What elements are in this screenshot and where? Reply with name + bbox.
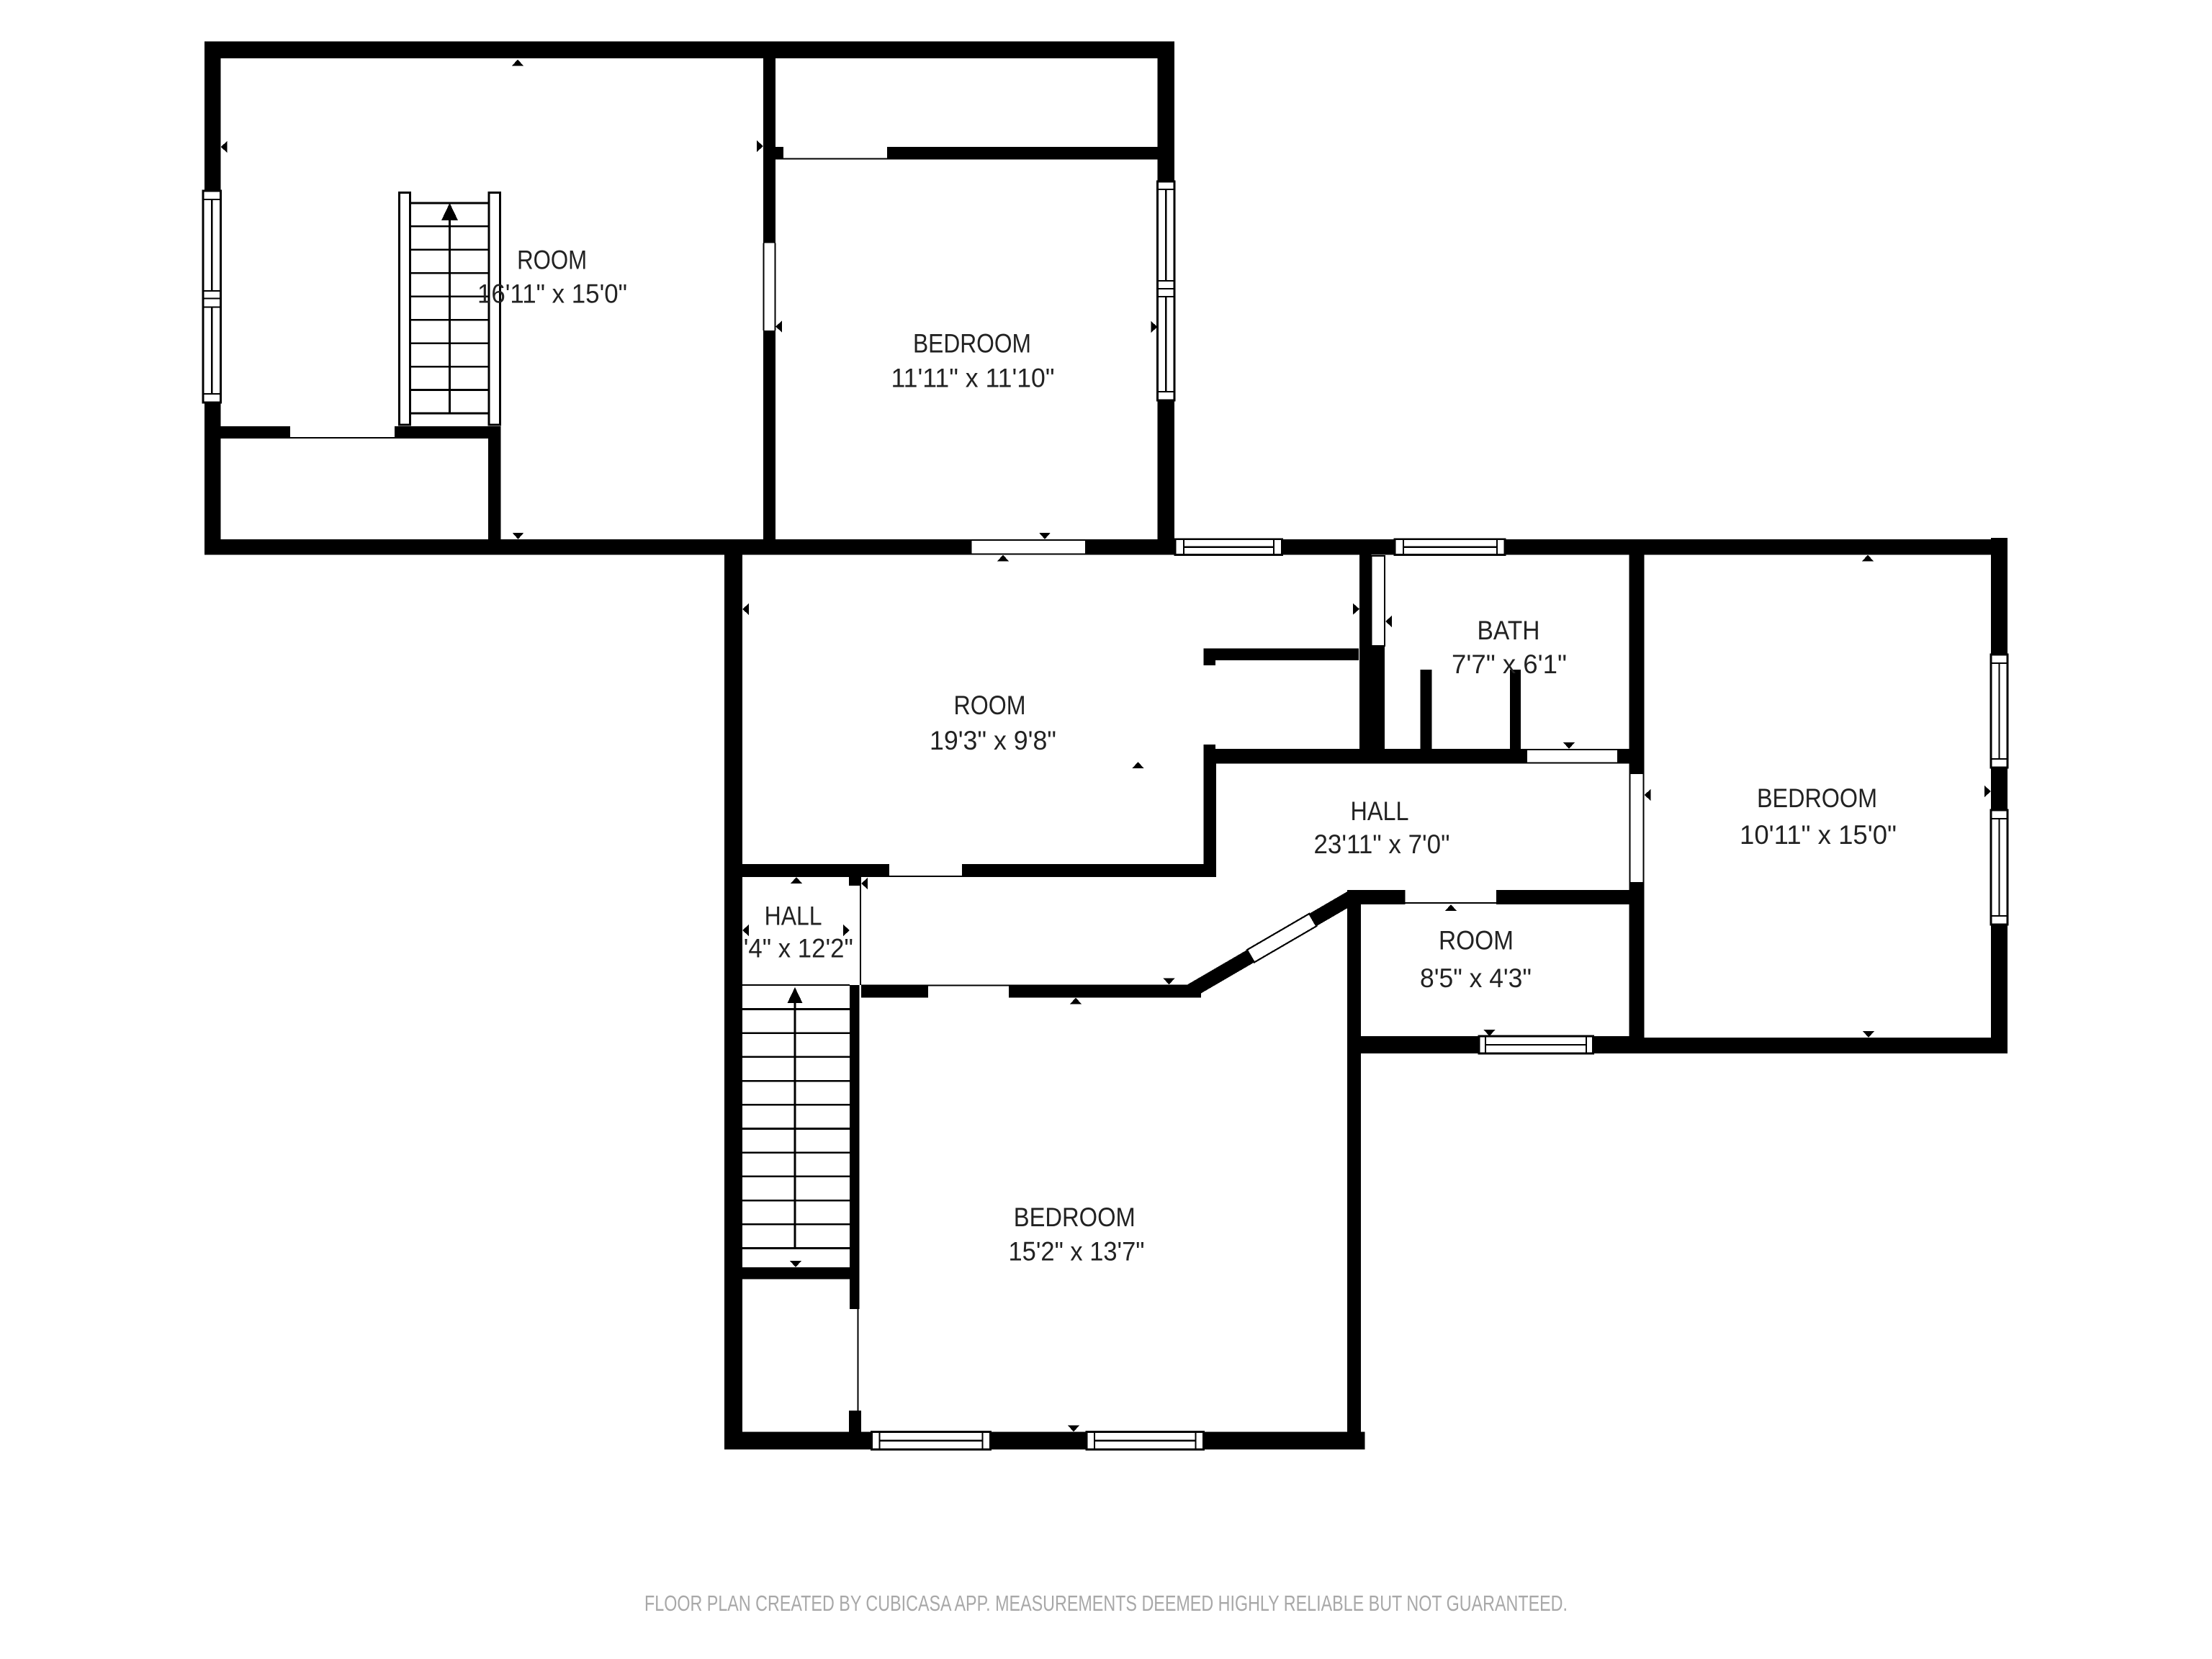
svg-text:7'7" x 6'1": 7'7" x 6'1" [1452,649,1567,679]
svg-text:BEDROOM: BEDROOM [1757,783,1877,813]
svg-text:FLOOR PLAN CREATED BY CUBICASA: FLOOR PLAN CREATED BY CUBICASA APP. MEAS… [644,1591,1568,1616]
svg-text:'4" x 12'2": '4" x 12'2" [744,934,853,963]
svg-text:BEDROOM: BEDROOM [913,328,1031,358]
svg-text:11'11" x 11'10": 11'11" x 11'10" [891,364,1055,393]
svg-text:ROOM: ROOM [1439,926,1514,956]
svg-text:ROOM: ROOM [517,246,587,275]
svg-text:BATH: BATH [1478,616,1540,645]
svg-text:ROOM: ROOM [954,691,1026,720]
svg-text:8'5" x 4'3": 8'5" x 4'3" [1420,963,1532,993]
svg-text:15'2" x 13'7": 15'2" x 13'7" [1009,1237,1145,1267]
svg-text:16'11" x 15'0": 16'11" x 15'0" [477,279,627,309]
svg-text:BEDROOM: BEDROOM [1014,1202,1136,1232]
svg-text:23'11" x 7'0": 23'11" x 7'0" [1314,829,1450,859]
svg-text:19'3" x 9'8": 19'3" x 9'8" [930,726,1056,755]
svg-text:HALL: HALL [765,901,822,930]
svg-text:10'11" x 15'0": 10'11" x 15'0" [1740,820,1897,850]
svg-text:HALL: HALL [1351,796,1409,826]
